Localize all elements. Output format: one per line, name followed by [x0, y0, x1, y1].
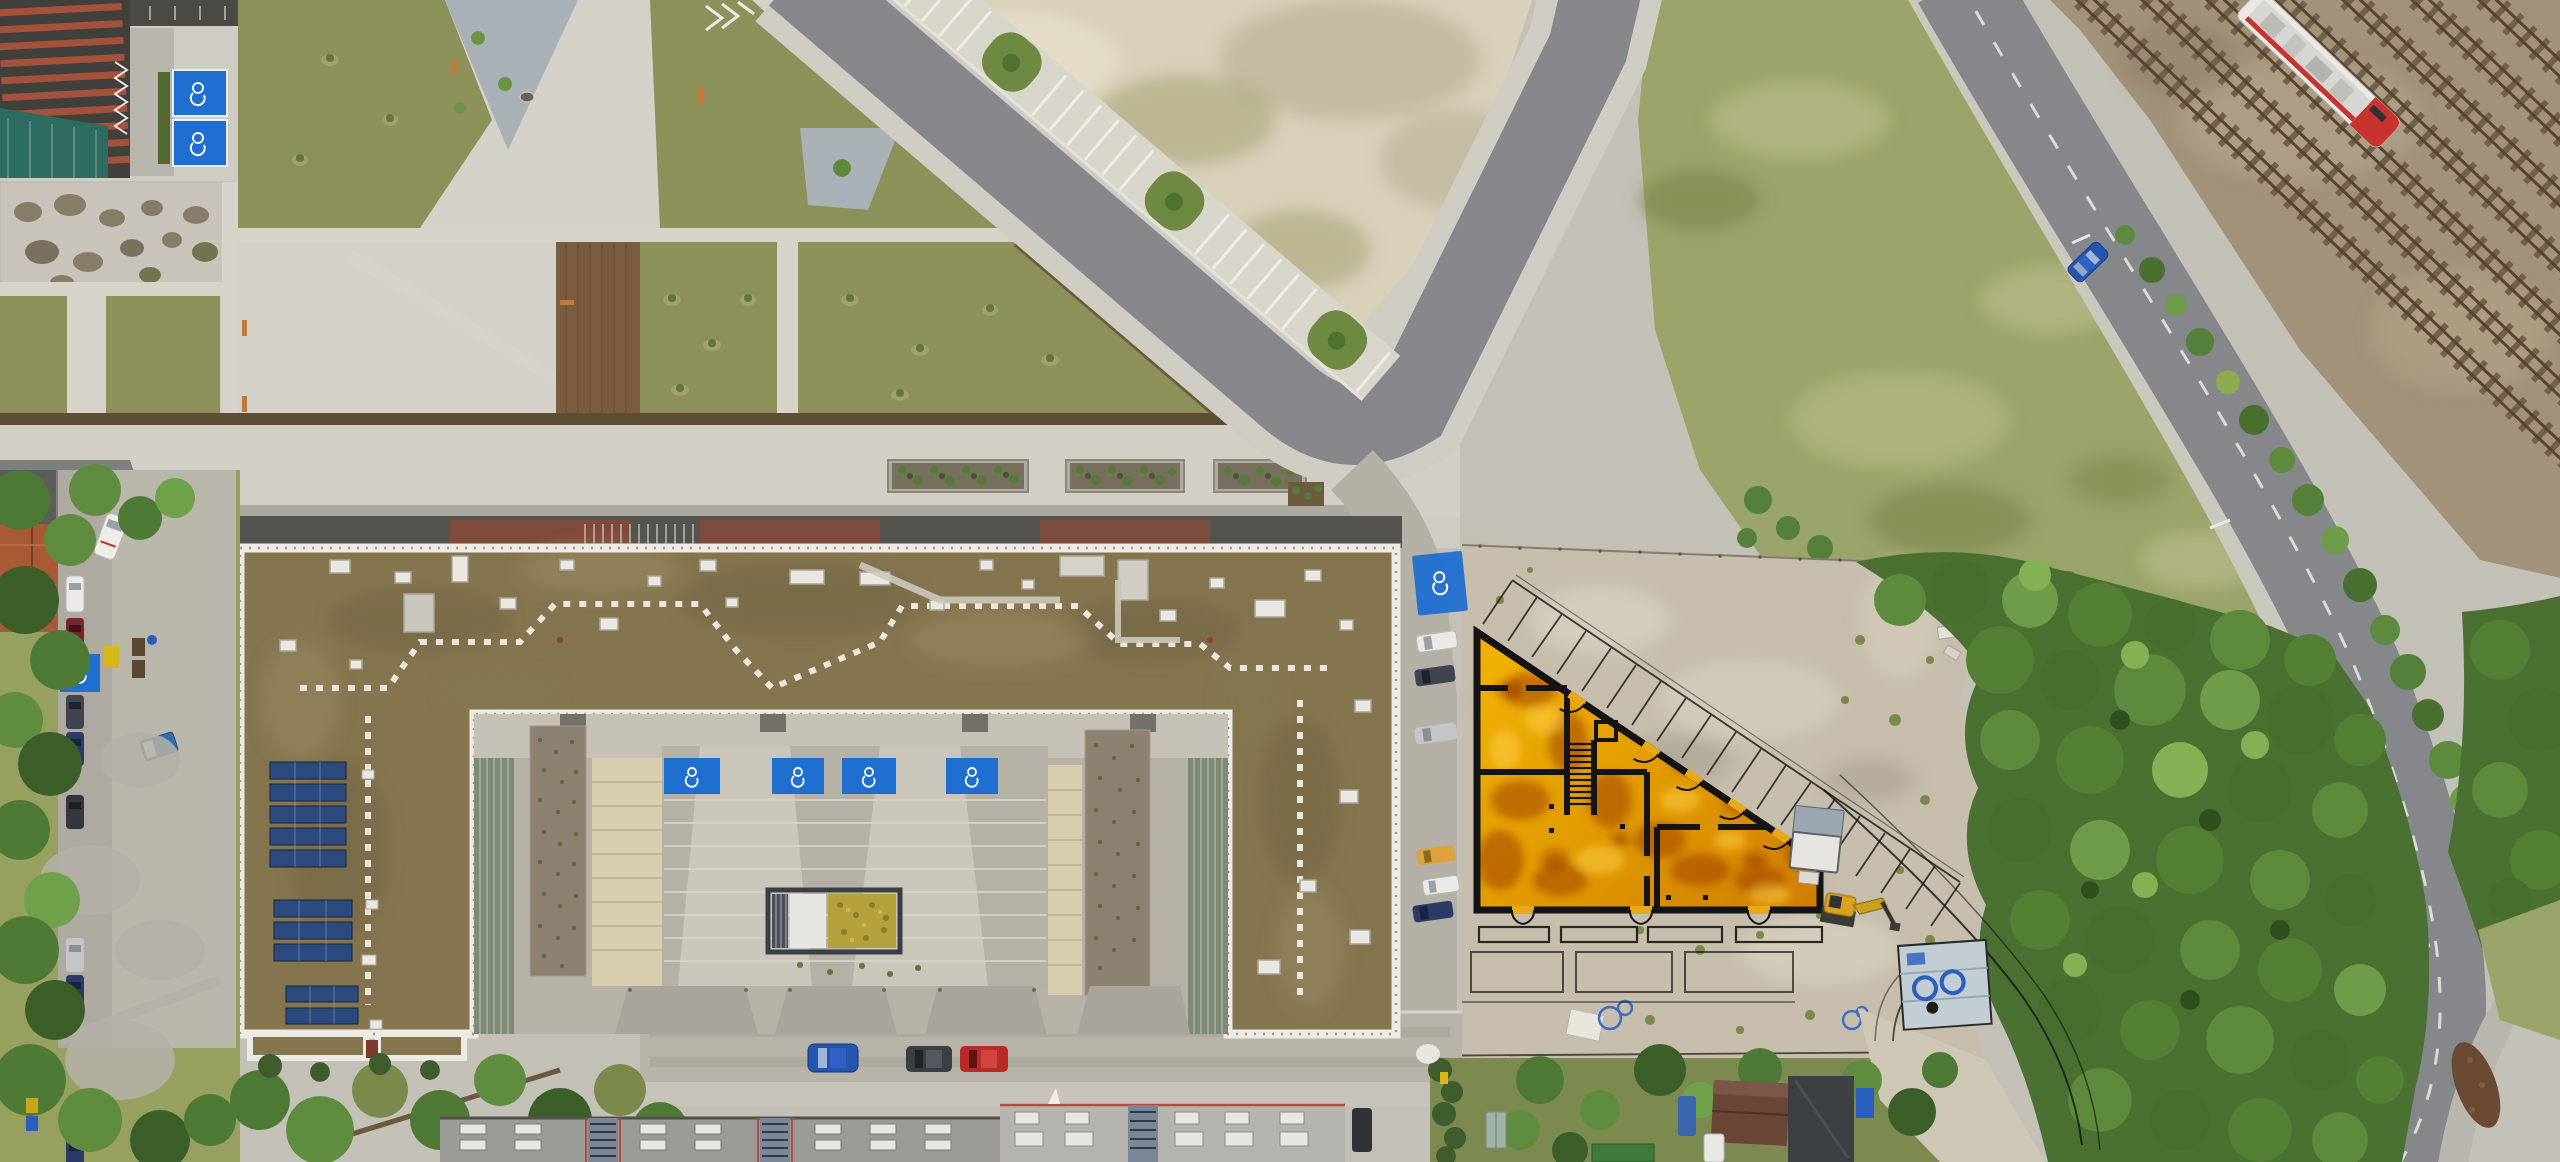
white-dome-tent: [1416, 1044, 1440, 1064]
aerial-photo: [0, 0, 2560, 1162]
aerial-photo-canvas: [0, 0, 2560, 1162]
boulder: [520, 92, 534, 102]
white-van-garden: [1704, 1134, 1724, 1162]
blue-car-garden: [1678, 1096, 1696, 1136]
promenade-planters: [888, 460, 1306, 492]
sedum-roof: [828, 894, 896, 948]
green-shed: [1592, 1144, 1654, 1162]
tan-path: [592, 758, 662, 986]
courtyard: [474, 714, 1228, 1034]
planting-blobs: [0, 182, 232, 294]
soil-edging: [0, 413, 1240, 425]
bike-shelter: [768, 890, 900, 952]
blue-tarp: [1856, 1088, 1874, 1118]
lawn-parcel: [640, 242, 777, 420]
residential-building: [238, 516, 1402, 1058]
tilled-parcel: [556, 242, 640, 420]
parked-cars-south: [808, 1044, 1008, 1072]
accessible-bay-east: [1412, 551, 1468, 616]
equipment-trailer: [1898, 940, 1992, 1030]
parked-car-dark: [1352, 1108, 1372, 1152]
